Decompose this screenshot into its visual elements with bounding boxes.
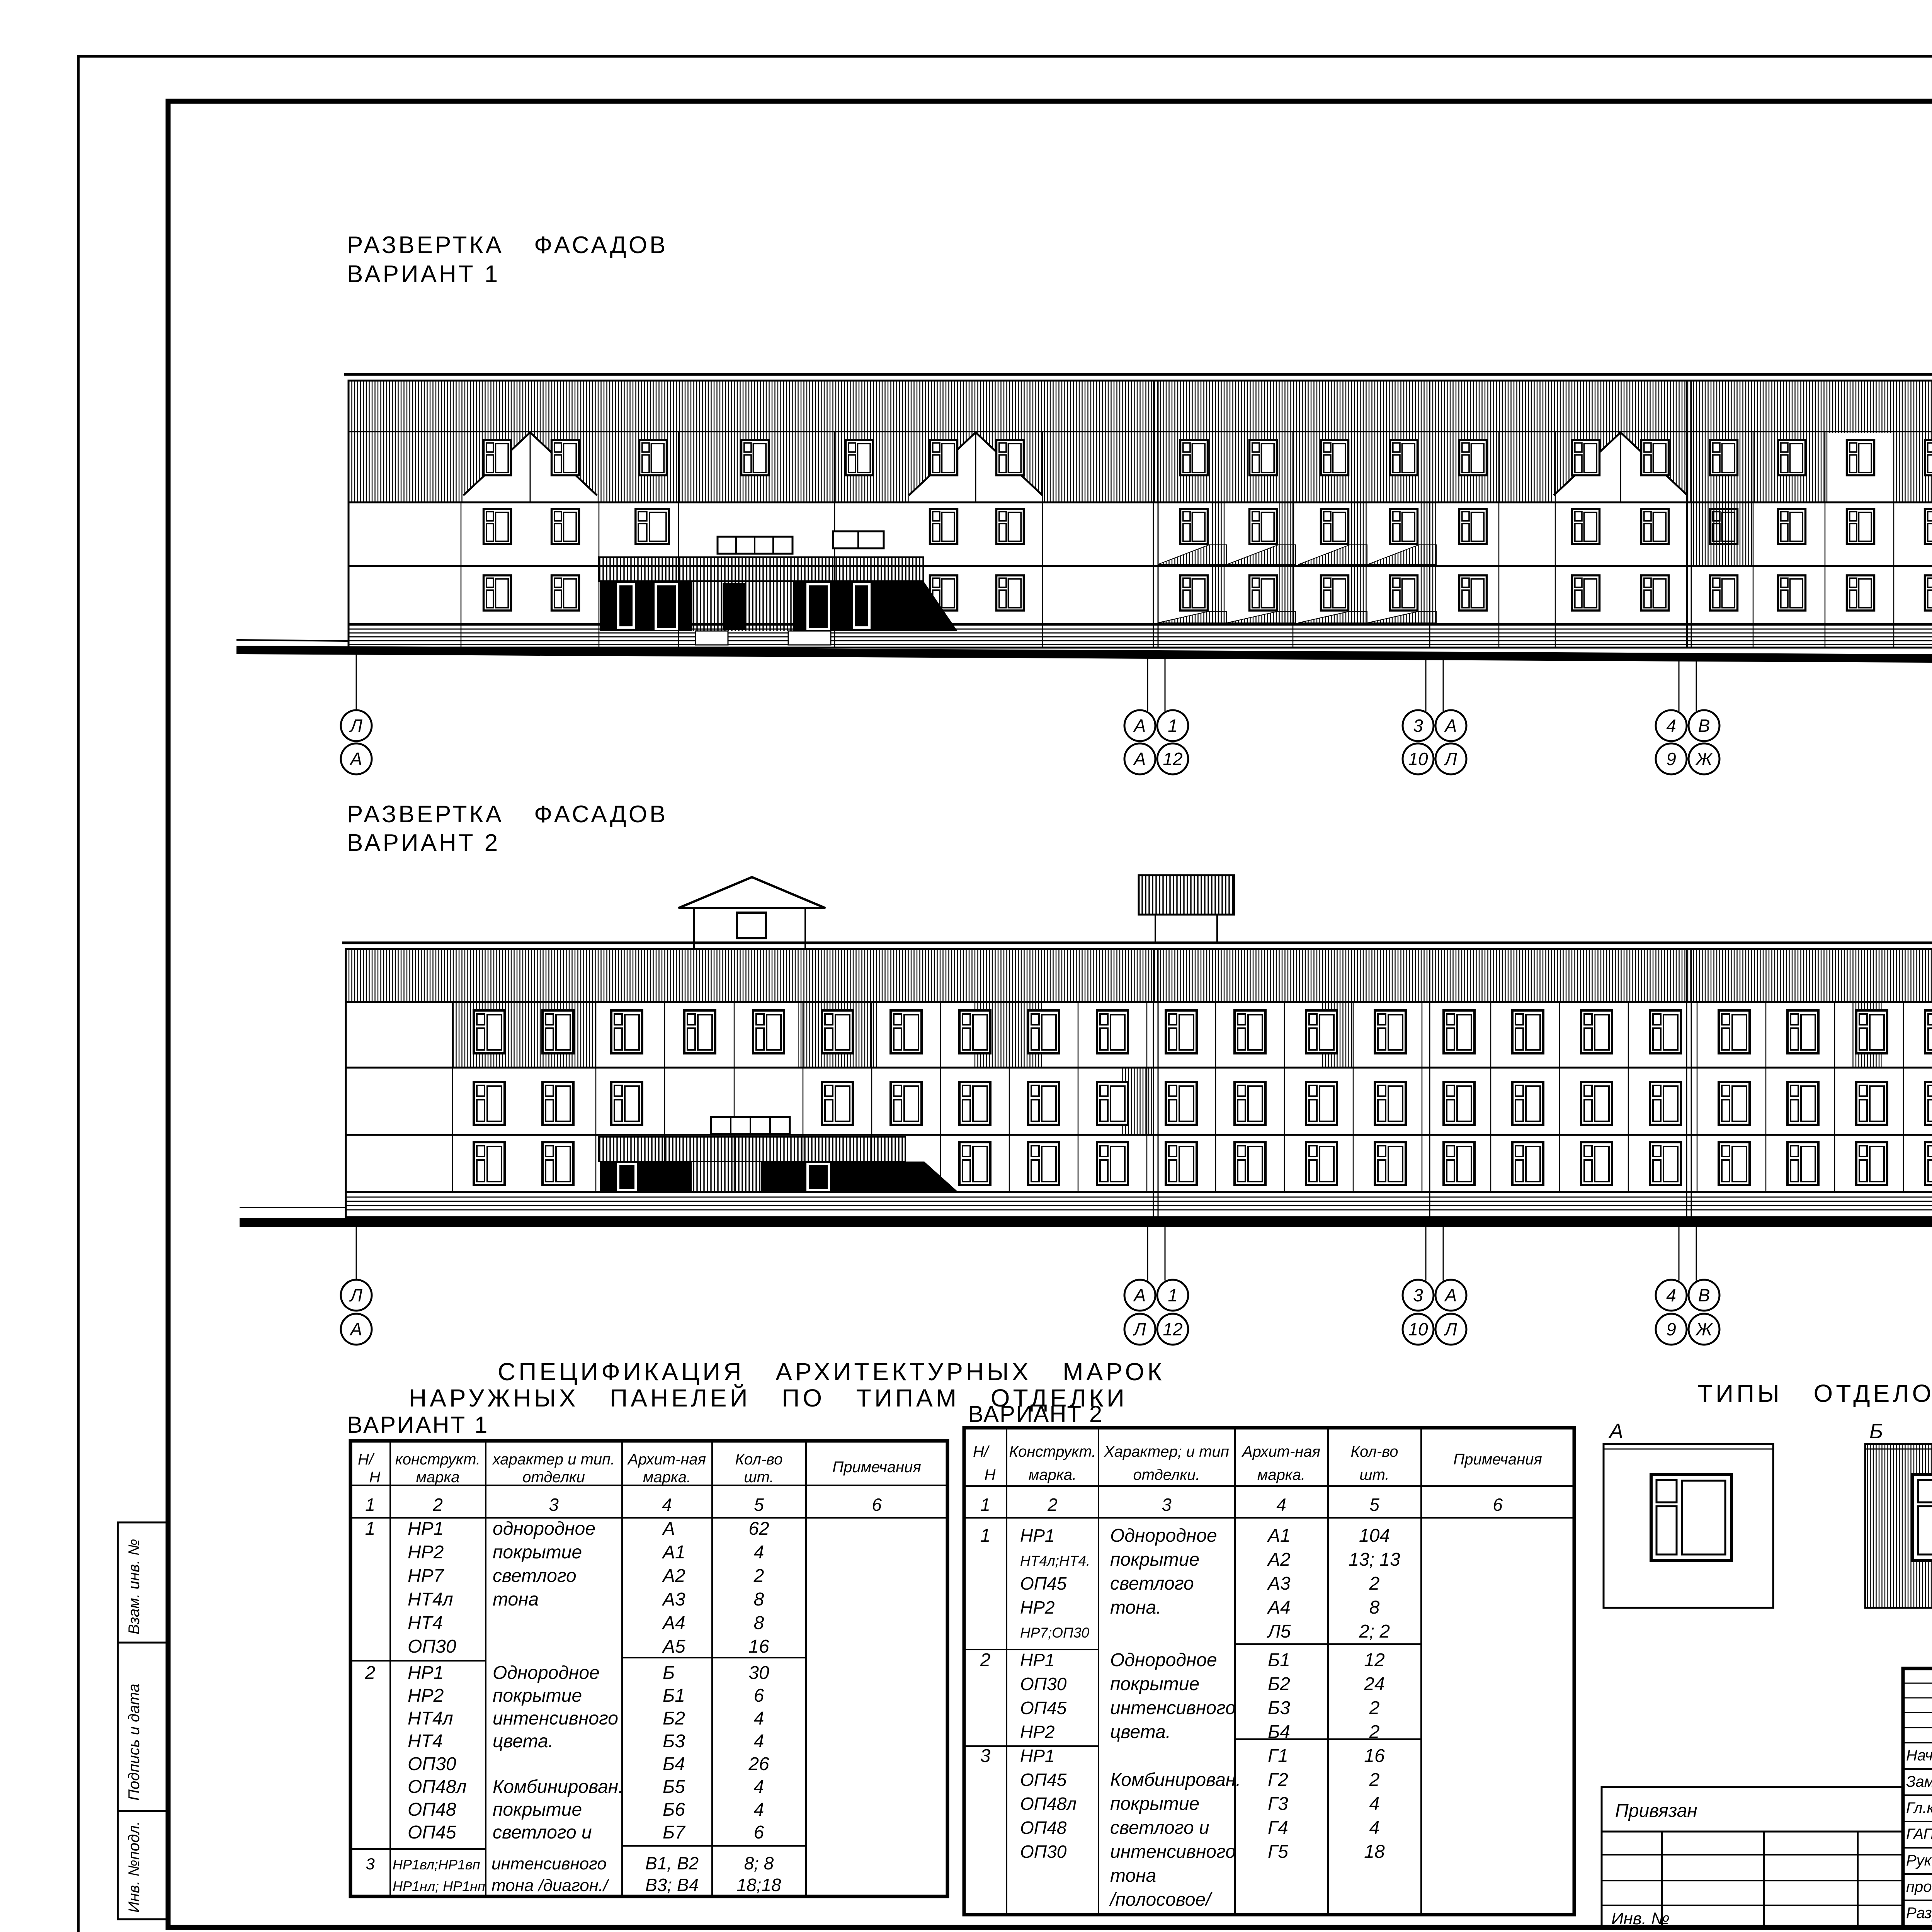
svg-text:Н: Н [985, 1466, 996, 1483]
svg-text:4: 4 [1666, 716, 1676, 736]
svg-text:ОП30: ОП30 [1020, 1674, 1067, 1694]
svg-text:Л: Л [1444, 749, 1457, 769]
svg-text:РАЗВЕРТКА ФАСАДОВ: РАЗВЕРТКА ФАСАДОВ [347, 801, 668, 828]
svg-text:/полосовое/: /полосовое/ [1109, 1889, 1213, 1910]
svg-text:покрытие: покрытие [493, 1542, 582, 1563]
svg-text:светлого: светлого [493, 1566, 577, 1586]
svg-text:3: 3 [1413, 1285, 1423, 1305]
svg-text:1: 1 [980, 1526, 991, 1546]
svg-text:4: 4 [1369, 1818, 1380, 1838]
svg-text:2: 2 [365, 1663, 376, 1683]
svg-text:16: 16 [748, 1636, 769, 1657]
svg-text:Однородное: Однородное [493, 1663, 600, 1683]
svg-text:4: 4 [754, 1799, 764, 1820]
svg-text:НР7;ОП30: НР7;ОП30 [1020, 1625, 1089, 1641]
svg-text:ВАРИАНТ 2: ВАРИАНТ 2 [968, 1401, 1103, 1427]
svg-text:Зам.нач: Зам.нач [1906, 1773, 1932, 1790]
svg-text:9: 9 [1666, 749, 1676, 769]
svg-text:НТ4л;НТ4.: НТ4л;НТ4. [1020, 1553, 1090, 1569]
svg-text:16: 16 [1364, 1746, 1385, 1766]
svg-text:НР1: НР1 [408, 1663, 444, 1683]
svg-text:НР1вл;НР1вп: НР1вл;НР1вп [393, 1857, 480, 1872]
svg-text:НР1: НР1 [408, 1519, 444, 1539]
svg-text:6: 6 [1493, 1495, 1503, 1515]
svg-text:2: 2 [1369, 1770, 1380, 1790]
svg-text:НТ4: НТ4 [408, 1731, 443, 1752]
svg-text:А: А [1133, 1285, 1146, 1305]
svg-text:Конструкт.: Конструкт. [1009, 1443, 1096, 1460]
svg-text:интенсивного: интенсивного [1110, 1842, 1236, 1862]
svg-text:Л: Л [1444, 1319, 1457, 1339]
svg-text:1: 1 [1168, 716, 1178, 736]
svg-text:Архит-ная: Архит-ная [627, 1451, 706, 1468]
svg-text:Гл.конст.: Гл.конст. [1906, 1799, 1932, 1816]
svg-text:Л: Л [1133, 1319, 1146, 1339]
svg-text:Ж: Ж [1695, 749, 1713, 769]
svg-text:12: 12 [1163, 749, 1182, 769]
svg-text:6: 6 [754, 1822, 764, 1843]
svg-text:3: 3 [1413, 716, 1423, 736]
svg-text:3: 3 [366, 1855, 374, 1873]
svg-text:4: 4 [1369, 1794, 1380, 1814]
svg-text:марка.: марка. [1257, 1466, 1305, 1483]
svg-text:В1, В2: В1, В2 [645, 1853, 699, 1873]
svg-text:Г1: Г1 [1268, 1746, 1288, 1766]
svg-text:3: 3 [980, 1746, 991, 1766]
svg-text:18: 18 [1364, 1842, 1385, 1862]
svg-text:конструкт.: конструкт. [395, 1451, 480, 1468]
svg-text:5: 5 [1369, 1495, 1379, 1515]
svg-text:Комбинирован.: Комбинирован. [493, 1777, 624, 1797]
svg-text:8: 8 [754, 1589, 764, 1610]
svg-text:ОП48л: ОП48л [1020, 1794, 1077, 1814]
svg-text:2: 2 [432, 1495, 443, 1515]
svg-text:марка.: марка. [1029, 1466, 1077, 1483]
svg-text:26: 26 [748, 1754, 769, 1774]
svg-text:Подпись и дата: Подпись и дата [126, 1684, 143, 1801]
svg-text:2; 2: 2; 2 [1359, 1621, 1390, 1642]
svg-text:Б7: Б7 [663, 1822, 686, 1843]
svg-text:Характер; и тип: Характер; и тип [1104, 1443, 1229, 1460]
svg-text:тона /диагон./: тона /диагон./ [492, 1876, 609, 1895]
svg-text:4: 4 [754, 1777, 764, 1797]
svg-text:светлого и: светлого и [1110, 1818, 1209, 1838]
svg-text:РАЗВЕРТКА ФАСАДОВ: РАЗВЕРТКА ФАСАДОВ [347, 232, 668, 259]
svg-text:ВАРИАНТ 2: ВАРИАНТ 2 [347, 830, 500, 856]
svg-text:1: 1 [365, 1495, 375, 1515]
svg-text:Б: Б [663, 1663, 675, 1683]
svg-text:Г2: Г2 [1268, 1770, 1288, 1790]
svg-text:НР1нл; НР1нп: НР1нл; НР1нп [393, 1878, 485, 1894]
svg-text:Г4: Г4 [1268, 1818, 1288, 1838]
svg-text:6: 6 [872, 1495, 882, 1515]
svg-text:отделки: отделки [522, 1469, 585, 1486]
svg-text:Б3: Б3 [1268, 1698, 1290, 1718]
svg-text:10: 10 [1408, 749, 1428, 769]
svg-text:НР1: НР1 [1020, 1650, 1054, 1670]
svg-text:12: 12 [1163, 1319, 1182, 1339]
svg-text:Инв. №подл.: Инв. №подл. [126, 1821, 143, 1913]
svg-text:Привязан: Привязан [1615, 1801, 1697, 1821]
svg-text:А: А [1444, 716, 1457, 736]
svg-text:А: А [1444, 1285, 1457, 1305]
svg-text:ГАП: ГАП [1906, 1826, 1932, 1843]
svg-text:А1: А1 [662, 1542, 685, 1563]
svg-text:4: 4 [754, 1542, 764, 1563]
svg-text:Комбинирован.: Комбинирован. [1110, 1770, 1241, 1790]
svg-text:ОП30: ОП30 [408, 1636, 456, 1657]
svg-text:104: 104 [1359, 1526, 1390, 1546]
svg-text:Б3: Б3 [663, 1731, 685, 1752]
svg-text:тона.: тона. [1110, 1597, 1162, 1618]
svg-text:марка: марка [416, 1469, 459, 1486]
svg-text:А: А [662, 1519, 675, 1539]
svg-text:А: А [1133, 716, 1146, 736]
svg-text:НР1: НР1 [1020, 1746, 1054, 1766]
svg-text:2: 2 [753, 1566, 764, 1586]
svg-text:светлого: светлого [1110, 1573, 1194, 1594]
svg-text:интенсивного: интенсивного [1110, 1698, 1236, 1718]
svg-text:1: 1 [365, 1519, 376, 1539]
svg-text:Примечания: Примечания [832, 1459, 921, 1476]
svg-text:4: 4 [754, 1708, 764, 1729]
svg-text:2: 2 [1369, 1698, 1380, 1718]
svg-text:ОП30: ОП30 [408, 1754, 456, 1774]
svg-text:марка.: марка. [643, 1469, 691, 1486]
svg-text:Б1: Б1 [1268, 1650, 1290, 1670]
svg-text:2: 2 [1369, 1722, 1380, 1742]
svg-text:Нач.АПМ: Нач.АПМ [1906, 1747, 1932, 1764]
svg-text:Г3: Г3 [1268, 1794, 1288, 1814]
svg-text:Ж: Ж [1695, 1319, 1713, 1339]
svg-text:8: 8 [754, 1613, 764, 1633]
svg-text:А4: А4 [662, 1613, 685, 1633]
svg-text:НТ4: НТ4 [408, 1613, 443, 1633]
svg-text:покрытие: покрытие [1110, 1549, 1199, 1570]
svg-text:2: 2 [980, 1650, 991, 1670]
svg-text:9: 9 [1666, 1319, 1676, 1339]
svg-text:Взам. инв. №: Взам. инв. № [126, 1539, 143, 1634]
svg-text:24: 24 [1364, 1674, 1384, 1694]
svg-text:Н/: Н/ [358, 1451, 375, 1468]
svg-text:Л: Л [349, 716, 362, 736]
svg-text:светлого и: светлого и [493, 1822, 592, 1843]
svg-text:НР7: НР7 [408, 1566, 445, 1586]
svg-text:Кол-во: Кол-во [1350, 1443, 1398, 1460]
svg-text:Л5: Л5 [1267, 1621, 1291, 1642]
svg-text:цвета.: цвета. [1110, 1722, 1171, 1742]
svg-text:НР2: НР2 [1020, 1597, 1054, 1617]
svg-text:3: 3 [549, 1495, 559, 1515]
svg-text:ОП45: ОП45 [1020, 1573, 1067, 1594]
svg-text:Б2: Б2 [663, 1708, 685, 1729]
svg-text:30: 30 [748, 1663, 769, 1683]
svg-text:А3: А3 [662, 1589, 685, 1610]
svg-text:НР2: НР2 [408, 1542, 444, 1563]
svg-text:НР2: НР2 [1020, 1722, 1054, 1742]
svg-text:Б6: Б6 [663, 1799, 685, 1820]
svg-text:НТ4л: НТ4л [408, 1589, 453, 1610]
svg-text:А2: А2 [1267, 1549, 1291, 1570]
svg-text:ОП48л: ОП48л [408, 1777, 467, 1797]
svg-text:А4: А4 [1267, 1597, 1291, 1618]
svg-text:Б4: Б4 [1268, 1722, 1290, 1742]
svg-text:покрытие: покрытие [493, 1685, 582, 1706]
svg-text:Б4: Б4 [663, 1754, 685, 1774]
svg-text:ТИПЫ ОТДЕЛОК НАРУЖНЫХ ПА: ТИПЫ ОТДЕЛОК НАРУЖНЫХ ПАНЕЛЕЙ [1697, 1379, 1932, 1407]
svg-text:Примечания: Примечания [1453, 1451, 1542, 1468]
svg-text:ОП45: ОП45 [1020, 1698, 1067, 1718]
svg-text:Н/: Н/ [973, 1443, 990, 1460]
svg-text:2: 2 [1047, 1495, 1058, 1515]
svg-text:А: А [1608, 1420, 1623, 1443]
svg-text:покрытие: покрытие [1110, 1674, 1199, 1694]
svg-text:А1: А1 [1267, 1526, 1291, 1546]
svg-text:ВАРИАНТ 1: ВАРИАНТ 1 [347, 1412, 489, 1438]
svg-text:4: 4 [662, 1495, 672, 1515]
svg-text:однородное: однородное [493, 1519, 595, 1539]
svg-text:покрытие: покрытие [493, 1799, 582, 1820]
svg-text:Л: Л [349, 1285, 362, 1305]
svg-text:шт.: шт. [744, 1469, 774, 1486]
svg-text:4: 4 [754, 1731, 764, 1752]
svg-text:А: А [349, 749, 362, 769]
svg-text:Г5: Г5 [1268, 1842, 1288, 1862]
svg-text:отделки.: отделки. [1133, 1466, 1200, 1483]
svg-text:А: А [1133, 749, 1146, 769]
svg-text:интенсивного: интенсивного [492, 1854, 607, 1873]
svg-text:ОП30: ОП30 [1020, 1842, 1067, 1862]
svg-text:А2: А2 [662, 1566, 685, 1586]
svg-text:ОП48: ОП48 [408, 1799, 456, 1820]
svg-text:18;18: 18;18 [736, 1875, 781, 1895]
svg-text:2: 2 [1369, 1573, 1380, 1594]
svg-text:3: 3 [1162, 1495, 1172, 1515]
svg-text:6: 6 [754, 1685, 764, 1706]
svg-text:тона: тона [493, 1589, 539, 1610]
svg-text:НР1: НР1 [1020, 1526, 1054, 1546]
svg-text:Б: Б [1869, 1420, 1883, 1443]
svg-text:8; 8: 8; 8 [744, 1853, 774, 1873]
svg-text:62: 62 [748, 1519, 769, 1539]
svg-text:Однородное: Однородное [1110, 1526, 1217, 1546]
svg-text:Б5: Б5 [663, 1777, 685, 1797]
svg-text:13; 13: 13; 13 [1349, 1549, 1400, 1570]
svg-text:Рук. гр.: Рук. гр. [1906, 1852, 1932, 1869]
svg-text:12: 12 [1364, 1650, 1384, 1670]
svg-text:Архит-ная: Архит-ная [1242, 1443, 1320, 1460]
svg-text:Инв. №: Инв. № [1611, 1909, 1670, 1928]
svg-text:10: 10 [1408, 1319, 1428, 1339]
svg-text:4: 4 [1276, 1495, 1286, 1515]
svg-text:4: 4 [1666, 1285, 1676, 1305]
svg-text:В3; В4: В3; В4 [645, 1875, 699, 1895]
svg-text:Н: Н [369, 1469, 381, 1486]
svg-text:ВАРИАНТ 1: ВАРИАНТ 1 [347, 261, 500, 287]
svg-text:Однородное: Однородное [1110, 1650, 1217, 1670]
svg-text:покрытие: покрытие [1110, 1794, 1199, 1814]
svg-text:5: 5 [754, 1495, 764, 1515]
svg-text:А3: А3 [1267, 1573, 1291, 1594]
svg-text:цвета.: цвета. [493, 1731, 553, 1752]
svg-text:НР2: НР2 [408, 1685, 444, 1706]
svg-text:ОП48: ОП48 [1020, 1818, 1067, 1838]
svg-text:Б1: Б1 [663, 1685, 685, 1706]
svg-text:А: А [349, 1319, 362, 1339]
svg-text:НТ4л: НТ4л [408, 1708, 453, 1729]
svg-text:СПЕЦИФИКАЦИЯ АРХИТЕКТУРНЫХ: СПЕЦИФИКАЦИЯ АРХИТЕКТУРНЫХ МАРОК [498, 1358, 1165, 1386]
svg-text:Разраб: Разраб [1906, 1905, 1932, 1922]
svg-text:провер.: провер. [1906, 1878, 1932, 1895]
svg-text:Б2: Б2 [1268, 1674, 1290, 1694]
svg-text:1: 1 [1168, 1285, 1178, 1305]
svg-text:Кол-во: Кол-во [735, 1451, 782, 1468]
svg-text:В: В [1698, 716, 1710, 736]
svg-text:характер и тип.: характер и тип. [492, 1451, 615, 1468]
svg-text:интенсивного: интенсивного [493, 1708, 618, 1729]
svg-text:1: 1 [980, 1495, 990, 1515]
svg-text:В: В [1698, 1285, 1710, 1305]
svg-text:ОП45: ОП45 [408, 1822, 456, 1843]
svg-text:шт.: шт. [1359, 1466, 1389, 1483]
svg-text:А5: А5 [662, 1636, 685, 1657]
svg-text:тона: тона [1110, 1866, 1156, 1886]
svg-text:8: 8 [1369, 1597, 1380, 1618]
svg-text:ОП45: ОП45 [1020, 1770, 1067, 1790]
